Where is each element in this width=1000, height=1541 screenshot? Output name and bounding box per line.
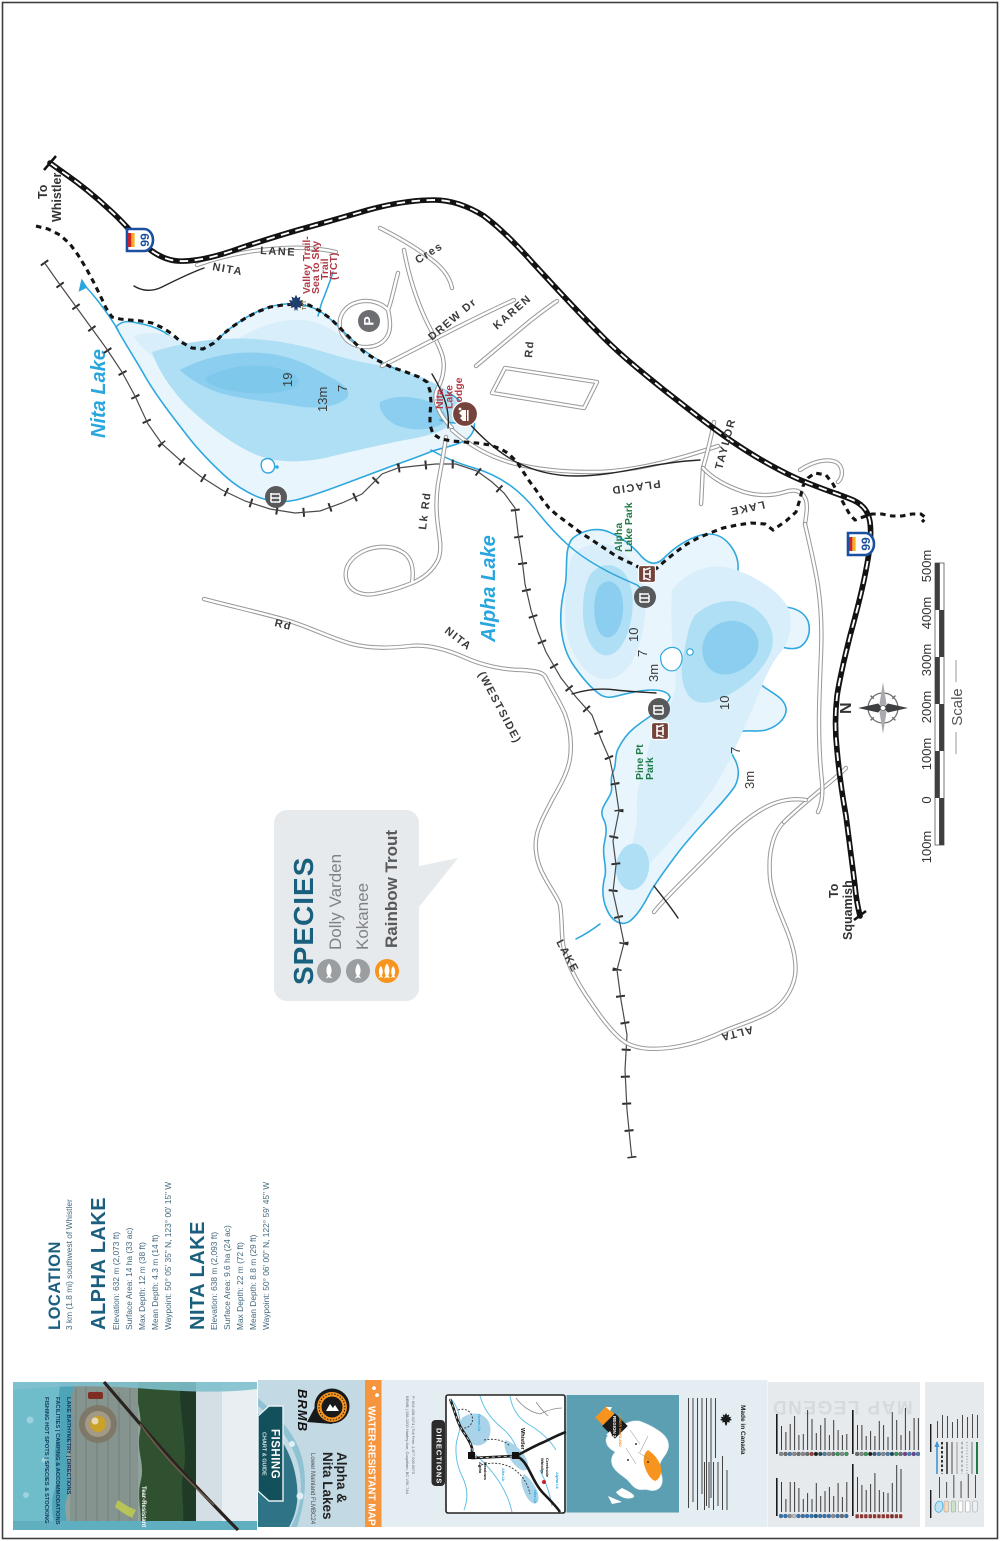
svg-text:CHART & GUIDE: CHART & GUIDE: [261, 1432, 267, 1476]
svg-text:Creekside: Creekside: [545, 1458, 550, 1478]
svg-text:ALPHA LAKE: ALPHA LAKE: [88, 1197, 110, 1330]
svg-text:Dolly Varden: Dolly Varden: [326, 854, 345, 950]
svg-text:Waypoint: 50° 05' 35" N, 123°: Waypoint: 50° 05' 35" N, 123° 00' 15" W: [163, 1182, 173, 1330]
svg-text:Nita Lakes: Nita Lakes: [320, 1452, 335, 1520]
svg-text:3m: 3m: [646, 664, 661, 682]
svg-text:Squamish: Squamish: [841, 880, 855, 940]
svg-text:Lake Park: Lake Park: [623, 502, 635, 552]
svg-text:13m: 13m: [315, 387, 330, 412]
svg-text:FISHING HOT SPOTS | SPECIES &: FISHING HOT SPOTS | SPECIES & STOCKING: [43, 1397, 49, 1524]
svg-text:99: 99: [859, 537, 873, 551]
svg-text:0: 0: [919, 796, 934, 803]
svg-text:Tear-Resistant: Tear-Resistant: [140, 1486, 146, 1527]
svg-text:Lower Mainland FLMBC24: Lower Mainland FLMBC24: [309, 1453, 315, 1525]
svg-text:99: 99: [138, 233, 152, 247]
svg-text:400m: 400m: [919, 597, 934, 630]
svg-text:P: 604.438.3474 | Toll Free: 1: P: 604.438.3474 | Toll Free: 1.877.520.5…: [411, 1396, 416, 1475]
svg-text:100m: 100m: [919, 738, 934, 771]
svg-text:MAP LEGEND: MAP LEGEND: [771, 1396, 912, 1417]
svg-text:P: P: [361, 316, 377, 325]
svg-text:To: To: [36, 184, 50, 199]
svg-text:Max Depth: 22 m (72 ft): Max Depth: 22 m (72 ft): [235, 1242, 245, 1330]
svg-text:200m: 200m: [919, 691, 934, 724]
svg-text:Nita Lk: Nita Lk: [533, 1490, 538, 1504]
svg-text:Whistler: Whistler: [519, 1428, 525, 1451]
svg-text:7: 7: [335, 385, 350, 392]
svg-text:7: 7: [728, 747, 743, 754]
svg-text:Meadows: Meadows: [483, 1462, 488, 1481]
svg-text:LOCATION: LOCATION: [46, 1241, 64, 1330]
svg-text:WATER-RESISTANT MAP: WATER-RESISTANT MAP: [366, 1406, 377, 1526]
svg-text:Green Lk: Green Lk: [477, 1414, 482, 1432]
svg-text:BRMB: BRMB: [295, 1389, 310, 1432]
svg-text:Elevation: 638 m (2,093 ft): Elevation: 638 m (2,093 ft): [209, 1232, 219, 1330]
svg-text:TCT: TCT: [302, 300, 308, 310]
svg-text:Made in Canada: Made in Canada: [739, 1405, 746, 1455]
svg-text:LANE: LANE: [260, 245, 297, 259]
svg-text:Surface Area: 9.6 ha (24 ac): Surface Area: 9.6 ha (24 ac): [222, 1225, 232, 1330]
svg-text:FISHING: FISHING: [269, 1429, 281, 1479]
svg-text:FACILITIES | CAMPING & ACCOMMO: FACILITIES | CAMPING & ACCOMMODATIONS: [54, 1397, 60, 1525]
svg-text:NITA LAKE: NITA LAKE: [187, 1221, 209, 1330]
svg-text:Whistler: Whistler: [50, 173, 64, 222]
svg-text:Waypoint: 50° 06' 00" N, 122°: Waypoint: 50° 06' 00" N, 122° 59' 45" W: [261, 1182, 271, 1330]
svg-text:LOWER MAINLAND: LOWER MAINLAND: [618, 1414, 622, 1447]
svg-text:Mean Depth: 4.3 m (14 ft): Mean Depth: 4.3 m (14 ft): [150, 1234, 160, 1330]
svg-text:Alta Lk: Alta Lk: [501, 1468, 506, 1482]
svg-text:Park: Park: [644, 757, 656, 780]
svg-text:Max Depth: 12 m (38 ft): Max Depth: 12 m (38 ft): [137, 1242, 147, 1330]
svg-text:Nita Lake: Nita Lake: [88, 349, 110, 438]
svg-text:19: 19: [280, 373, 295, 387]
svg-text:LAKE BATHYMETRY | DIRECTIONS: LAKE BATHYMETRY | DIRECTIONS: [65, 1397, 71, 1495]
svg-text:Alpha &: Alpha &: [334, 1452, 349, 1503]
svg-text:Elevation: 632 m (2,073 ft): Elevation: 632 m (2,073 ft): [111, 1232, 121, 1330]
svg-text:REGION 2: REGION 2: [612, 1416, 617, 1438]
svg-text:Whistler: Whistler: [540, 1458, 545, 1474]
svg-text:Alpha Lk: Alpha Lk: [555, 1472, 560, 1490]
svg-text:BRMB | 108-1200 Hartley Ave, C: BRMB | 108-1200 Hartley Ave, Coquitlam, …: [405, 1396, 410, 1495]
svg-text:N: N: [838, 702, 855, 714]
svg-text:DIRECTIONS: DIRECTIONS: [435, 1428, 444, 1484]
svg-text:10: 10: [717, 696, 732, 710]
svg-text:(TCT): (TCT): [328, 253, 340, 280]
svg-text:SPECIES: SPECIES: [288, 857, 319, 985]
svg-text:500m: 500m: [919, 550, 934, 583]
svg-text:Mean Depth: 8.8 m (29 ft): Mean Depth: 8.8 m (29 ft): [248, 1234, 258, 1330]
svg-text:Rd: Rd: [523, 340, 536, 359]
svg-text:10: 10: [626, 628, 641, 642]
svg-text:100m: 100m: [919, 831, 934, 864]
svg-text:Rainbow Trout: Rainbow Trout: [382, 830, 401, 948]
svg-text:3 km (1.8 mi) southwest of Whi: 3 km (1.8 mi) southwest of Whistler: [64, 1199, 74, 1330]
svg-text:Alpha Lake: Alpha Lake: [478, 535, 500, 643]
svg-text:7: 7: [635, 650, 650, 657]
svg-text:3m: 3m: [742, 771, 757, 789]
svg-text:Scale: Scale: [949, 688, 966, 726]
svg-text:300m: 300m: [919, 644, 934, 677]
svg-text:Surface Area: 14 ha (33 ac): Surface Area: 14 ha (33 ac): [124, 1227, 134, 1330]
svg-text:To: To: [827, 883, 841, 898]
svg-text:Kokanee: Kokanee: [353, 883, 372, 950]
svg-text:Alpha: Alpha: [478, 1462, 483, 1474]
